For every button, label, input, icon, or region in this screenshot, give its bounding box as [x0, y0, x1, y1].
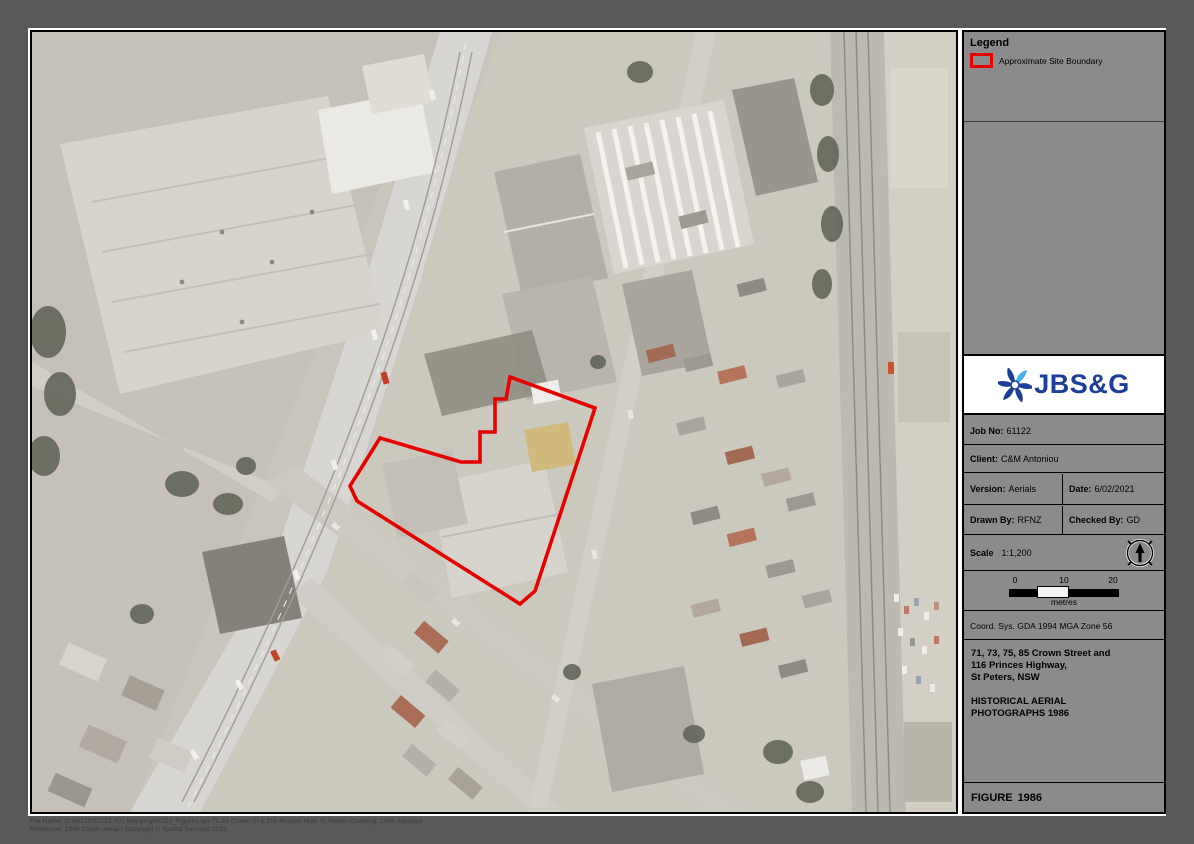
drawn-by-label: Drawn By:	[970, 515, 1015, 525]
legend: Legend Approximate Site Boundary	[964, 32, 1164, 122]
scale-label: Scale	[970, 548, 994, 558]
legend-item: Approximate Site Boundary	[970, 53, 1158, 68]
date-cell: Date: 6/02/2021	[1063, 474, 1164, 504]
coord-sys-text: Coord. Sys. GDA 1994 MGA Zone 56	[970, 621, 1112, 631]
address-line-2: 116 Princes Highway,	[971, 660, 1157, 672]
legend-title: Legend	[970, 37, 1158, 49]
address-line-1: 71, 73, 75, 85 Crown Street and	[971, 648, 1157, 660]
job-no-label: Job No:	[970, 426, 1004, 436]
job-no-value: 61122	[1007, 426, 1031, 436]
figure-number: 1986	[1018, 792, 1042, 804]
client-label: Client:	[970, 454, 998, 464]
scale-bar: 0 10 20 metres	[964, 572, 1164, 611]
figure-page: Legend Approximate Site Boundary JBS&	[28, 28, 1166, 816]
scale-bar-graphic	[1005, 586, 1123, 596]
version-label: Version:	[970, 484, 1006, 494]
title-block-sidebar: Legend Approximate Site Boundary JBS&	[962, 30, 1166, 814]
client-row: Client: C&M Antoniou	[964, 446, 1164, 473]
coord-sys-row: Coord. Sys. GDA 1994 MGA Zone 56	[964, 612, 1164, 640]
legend-item-label: Approximate Site Boundary	[999, 56, 1102, 66]
attribution-line-2: Reference: 1986 Crown aerial | Copyright…	[30, 826, 590, 834]
scale-value: 1:1,200	[1002, 548, 1032, 558]
map-attribution: File Name: G:\61122\61122-001 Mapping\61…	[30, 818, 590, 834]
map-title-line-1: HISTORICAL AERIAL	[971, 696, 1157, 708]
address-line-3: St Peters, NSW	[971, 672, 1157, 684]
checked-by-label: Checked By:	[1069, 515, 1124, 525]
date-label: Date:	[1069, 484, 1092, 494]
job-no-row: Job No: 61122	[964, 417, 1164, 445]
north-arrow-icon	[1122, 536, 1158, 570]
scale-bar-unit: metres	[1005, 597, 1123, 607]
figure-row: FIGURE 1986	[964, 784, 1164, 812]
attribution-line-1: File Name: G:\61122\61122-001 Mapping\61…	[30, 818, 590, 826]
scale-tick-10: 10	[1054, 575, 1074, 585]
aerial-photo	[32, 32, 956, 812]
date-value: 6/02/2021	[1095, 484, 1135, 494]
scale-tick-20: 20	[1103, 575, 1123, 585]
jbsg-logo: JBS&G	[964, 354, 1164, 415]
drawn-by-value: RFNZ	[1018, 515, 1042, 525]
scale-tick-0: 0	[1005, 575, 1025, 585]
aerial-map	[30, 30, 958, 814]
drawn-checked-row: Drawn By: RFNZ Checked By: GD	[964, 506, 1164, 535]
map-title-line-2: PHOTOGRAPHS 1986	[971, 708, 1157, 720]
sidebar-spacer	[964, 123, 1164, 354]
version-value: Aerials	[1009, 484, 1037, 494]
version-date-row: Version: Aerials Date: 6/02/2021	[964, 474, 1164, 505]
scale-row: Scale 1:1,200	[964, 536, 1164, 571]
checked-by-cell: Checked By: GD	[1063, 506, 1164, 534]
address-block: 71, 73, 75, 85 Crown Street and 116 Prin…	[964, 641, 1164, 783]
client-value: C&M Antoniou	[1001, 454, 1059, 464]
site-boundary-swatch-icon	[970, 53, 993, 68]
version-cell: Version: Aerials	[964, 474, 1063, 504]
jbsg-logo-text: JBS&G	[1034, 369, 1130, 400]
jbsg-pinwheel-icon	[998, 368, 1032, 402]
drawn-by-cell: Drawn By: RFNZ	[964, 506, 1063, 534]
figure-label: FIGURE	[971, 792, 1013, 804]
checked-by-value: GD	[1127, 515, 1141, 525]
